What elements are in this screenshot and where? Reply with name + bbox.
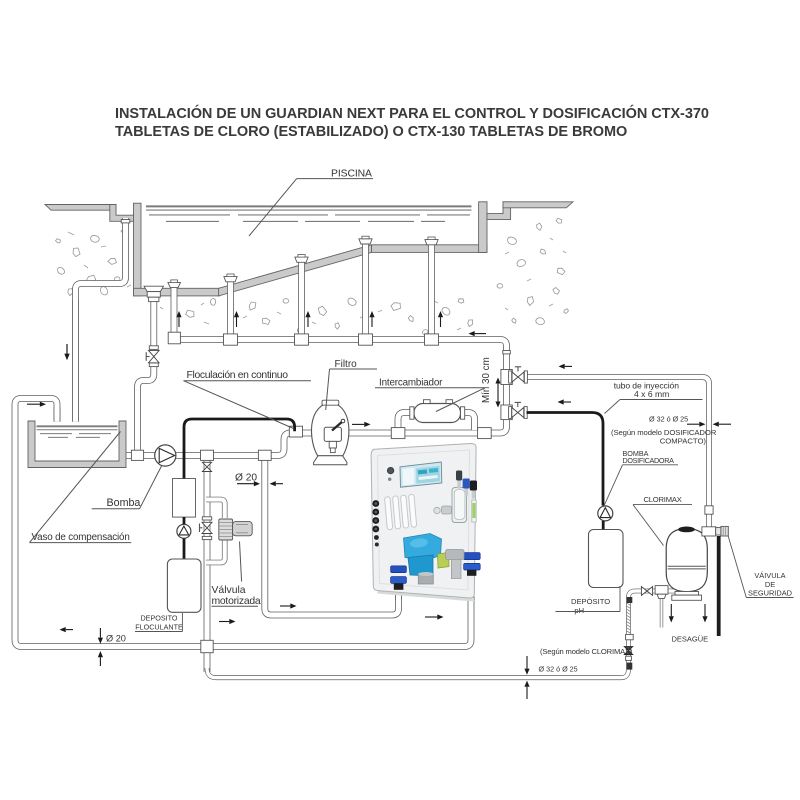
svg-text:SEGURIDAD: SEGURIDAD <box>748 589 792 598</box>
svg-text:Vaso de compensación: Vaso de compensación <box>32 532 130 543</box>
svg-text:DEPOSITO: DEPOSITO <box>140 613 177 622</box>
svg-text:motorizada: motorizada <box>212 596 261 607</box>
svg-text:Ø 32 ó Ø 25: Ø 32 ó Ø 25 <box>649 414 688 423</box>
svg-text:DESAGÜE: DESAGÜE <box>672 635 709 644</box>
svg-text:Bomba: Bomba <box>107 497 141 509</box>
svg-text:4 x 6 mm: 4 x 6 mm <box>634 389 669 399</box>
svg-text:PISCINA: PISCINA <box>331 169 372 180</box>
svg-text:VÁIVULA: VÁIVULA <box>754 571 785 580</box>
svg-text:INSTALACIÓN DE UN GUARDIAN NEX: INSTALACIÓN DE UN GUARDIAN NEXT PARA EL … <box>115 104 709 122</box>
svg-text:Mín 30 cm: Mín 30 cm <box>481 357 492 403</box>
svg-text:FLOCULANTE: FLOCULANTE <box>135 622 183 631</box>
svg-text:COMPACTO): COMPACTO) <box>660 436 707 445</box>
svg-text:Ø 32 ó Ø 25: Ø 32 ó Ø 25 <box>539 664 578 673</box>
svg-text:CLORIMAX: CLORIMAX <box>644 495 682 504</box>
svg-text:TABLETAS DE CLORO (ESTABILIZAD: TABLETAS DE CLORO (ESTABILIZADO) O CTX-1… <box>115 124 627 140</box>
svg-text:Filtro: Filtro <box>335 359 358 370</box>
svg-text:Válvula: Válvula <box>212 585 246 596</box>
svg-text:DEPÓSITO: DEPÓSITO <box>571 597 610 606</box>
svg-text:DOSIFICADORA: DOSIFICADORA <box>623 456 675 465</box>
svg-text:pH: pH <box>574 606 584 615</box>
svg-text:Ø 20: Ø 20 <box>106 634 126 644</box>
svg-text:Floculación en continuo: Floculación en continuo <box>187 370 289 381</box>
svg-text:(Según modelo CLORIMAX): (Según modelo CLORIMAX) <box>540 647 633 656</box>
svg-text:Intercambiador: Intercambiador <box>379 378 443 389</box>
svg-text:Ø 20: Ø 20 <box>235 473 257 484</box>
